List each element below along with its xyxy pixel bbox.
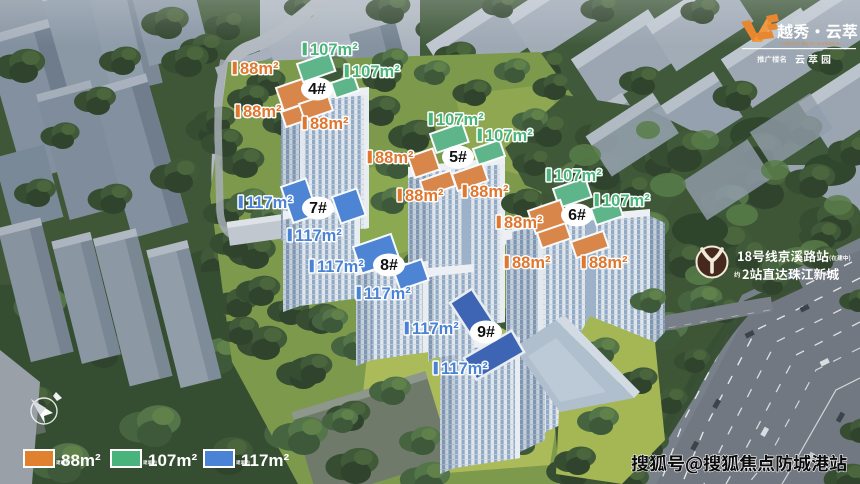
svg-text:117m²: 117m² xyxy=(246,194,293,212)
svg-text:88m²: 88m² xyxy=(512,254,551,272)
svg-text:6#: 6# xyxy=(568,207,586,224)
svg-text:117m²: 117m² xyxy=(364,285,411,303)
svg-text:88m²: 88m² xyxy=(375,149,414,167)
svg-text:88m²: 88m² xyxy=(61,451,101,470)
svg-text:107m²: 107m² xyxy=(310,41,358,59)
svg-text:88m²: 88m² xyxy=(470,183,509,201)
svg-text:YUEXIU META GARDEN: YUEXIU META GARDEN xyxy=(780,41,839,46)
svg-text:107m²: 107m² xyxy=(148,451,197,470)
svg-text:9#: 9# xyxy=(477,324,495,341)
svg-text:88m²: 88m² xyxy=(243,103,282,121)
svg-text:107m²: 107m² xyxy=(352,63,400,81)
svg-text:117m²: 117m² xyxy=(441,360,488,378)
svg-text:88m²: 88m² xyxy=(405,187,444,205)
svg-text:117m²: 117m² xyxy=(241,451,290,470)
svg-text:107m²: 107m² xyxy=(554,167,602,185)
svg-text:88m²: 88m² xyxy=(589,254,628,272)
svg-text:88m²: 88m² xyxy=(240,60,279,78)
svg-text:107m²: 107m² xyxy=(436,111,484,129)
svg-text:88m²: 88m² xyxy=(504,214,543,232)
svg-text:8#: 8# xyxy=(380,257,398,274)
svg-text:107m²: 107m² xyxy=(602,192,650,210)
svg-text:117m²: 117m² xyxy=(412,320,459,338)
svg-text:88m²: 88m² xyxy=(310,115,349,133)
svg-text:5#: 5# xyxy=(449,149,467,166)
svg-text:117m²: 117m² xyxy=(295,227,342,245)
svg-text:4#: 4# xyxy=(308,81,326,98)
svg-text:107m²: 107m² xyxy=(485,127,533,145)
svg-text:7#: 7# xyxy=(309,200,327,217)
svg-text:117m²: 117m² xyxy=(317,258,364,276)
